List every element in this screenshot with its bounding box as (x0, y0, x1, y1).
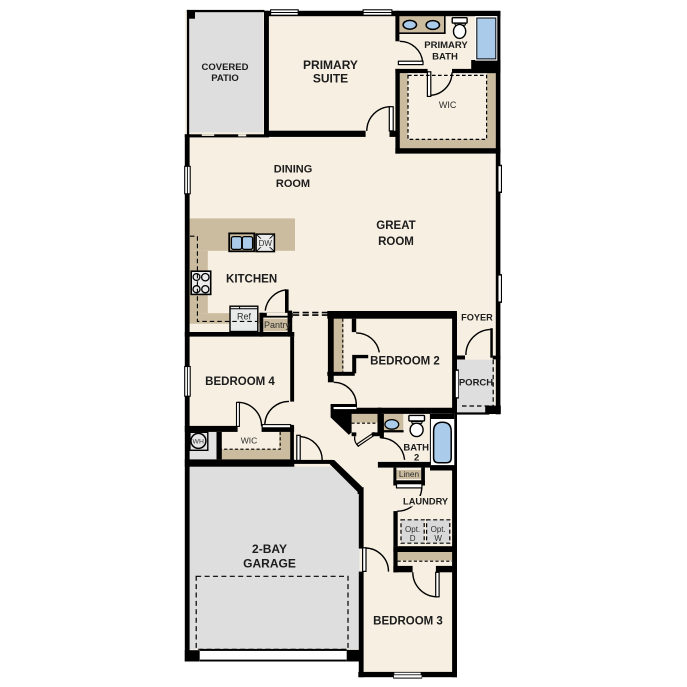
svg-text:Linen: Linen (399, 469, 420, 479)
svg-text:LAUNDRY: LAUNDRY (403, 497, 449, 507)
svg-text:WH: WH (193, 438, 204, 445)
svg-text:DINING: DINING (274, 164, 313, 176)
svg-text:PRIMARY: PRIMARY (424, 40, 468, 51)
svg-text:BEDROOM 4: BEDROOM 4 (205, 376, 275, 388)
svg-text:SUITE: SUITE (313, 72, 348, 86)
svg-text:Opt.: Opt. (405, 525, 420, 534)
svg-text:PORCH: PORCH (459, 377, 493, 388)
svg-text:Ref: Ref (237, 312, 252, 322)
svg-text:PATIO: PATIO (211, 73, 239, 84)
svg-text:DW: DW (259, 239, 273, 248)
svg-text:ROOM: ROOM (276, 178, 310, 190)
svg-text:D: D (410, 534, 416, 543)
svg-text:BEDROOM 2: BEDROOM 2 (370, 355, 440, 367)
svg-text:2: 2 (414, 453, 419, 464)
svg-text:ROOM: ROOM (378, 236, 414, 248)
svg-text:FOYER: FOYER (461, 312, 493, 322)
svg-text:PRIMARY: PRIMARY (303, 58, 358, 72)
svg-text:Opt.: Opt. (431, 525, 446, 534)
svg-text:KITCHEN: KITCHEN (226, 273, 277, 285)
svg-text:GREAT: GREAT (376, 220, 415, 232)
svg-text:BATH: BATH (432, 51, 458, 62)
svg-text:Pantry: Pantry (264, 320, 291, 330)
svg-text:WIC: WIC (439, 100, 457, 110)
svg-text:WIC: WIC (241, 435, 258, 445)
svg-text:W: W (434, 534, 442, 543)
svg-text:BEDROOM 3: BEDROOM 3 (373, 615, 443, 627)
svg-text:2-BAY: 2-BAY (252, 542, 287, 556)
svg-text:COVERED: COVERED (202, 62, 249, 73)
svg-text:GARAGE: GARAGE (243, 557, 296, 571)
